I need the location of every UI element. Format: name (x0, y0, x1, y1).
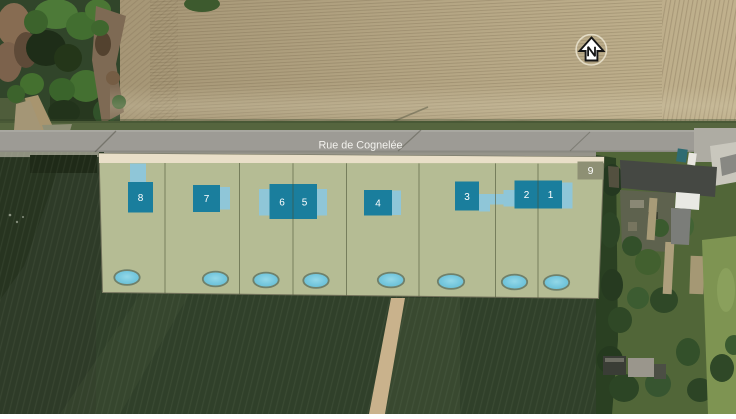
svg-text:6: 6 (279, 198, 285, 209)
svg-text:5: 5 (302, 198, 308, 209)
svg-text:1: 1 (548, 190, 554, 201)
svg-text:2: 2 (524, 190, 530, 201)
svg-text:3: 3 (464, 192, 470, 203)
svg-text:9: 9 (588, 165, 594, 177)
svg-text:8: 8 (138, 193, 144, 204)
svg-text:4: 4 (375, 199, 381, 210)
svg-text:7: 7 (204, 194, 210, 205)
svg-text:Rue de Cognelée: Rue de Cognelée (318, 139, 402, 151)
